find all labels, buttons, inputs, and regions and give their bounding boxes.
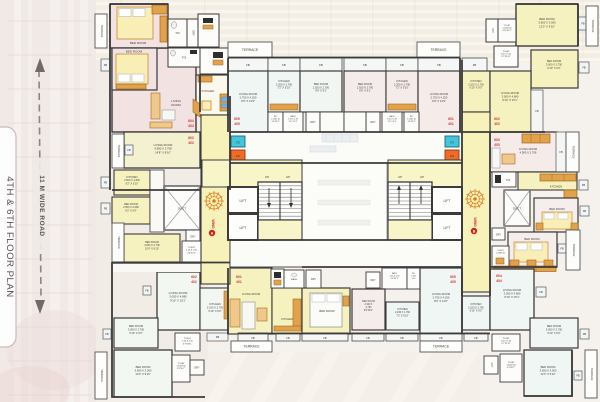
svg-text:WASH: WASH xyxy=(291,278,298,281)
svg-text:9’10” X 9’0”: 9’10” X 9’0” xyxy=(547,66,560,70)
svg-text:603: 603 xyxy=(494,138,500,142)
svg-text:KITCHEN: KITCHEN xyxy=(281,317,293,321)
svg-text:TERRACE: TERRACE xyxy=(591,20,595,33)
svg-text:401: 401 xyxy=(236,280,242,284)
svg-text:3‑11”X6’7”: 3‑11”X6’7” xyxy=(502,30,512,32)
svg-text:404: 404 xyxy=(496,279,502,283)
svg-text:FB: FB xyxy=(474,337,478,340)
svg-text:403: 403 xyxy=(188,141,194,145)
svg-text:UP: UP xyxy=(265,175,269,179)
svg-text:FB: FB xyxy=(319,63,323,67)
svg-text:FB: FB xyxy=(400,337,404,340)
svg-text:8’10” X 15’1”: 8’10” X 15’1” xyxy=(504,295,519,299)
svg-text:BED ROOM: BED ROOM xyxy=(549,207,565,211)
svg-text:8’0” X 14’0”: 8’0” X 14’0” xyxy=(434,299,448,303)
svg-text:605: 605 xyxy=(450,275,456,279)
svg-text:12’0” X 9’10”: 12’0” X 9’10” xyxy=(539,24,555,28)
svg-text:TERRACE: TERRACE xyxy=(572,146,576,159)
svg-text:LIVING ROOM: LIVING ROOM xyxy=(519,147,538,151)
svg-text:602: 602 xyxy=(191,275,197,279)
svg-text:2.00 X 1.20: 2.00 X 1.20 xyxy=(182,341,193,343)
svg-text:8’2” X 5’10”: 8’2” X 5’10” xyxy=(126,182,139,185)
svg-text:DRY: DRY xyxy=(370,279,375,282)
svg-text:1.30X2.00: 1.30X2.00 xyxy=(496,253,505,255)
svg-text:TOILET: TOILET xyxy=(184,338,192,340)
svg-text:7’2” X 5’10”: 7’2” X 5’10” xyxy=(396,314,408,317)
svg-text:LIVING ROOM: LIVING ROOM xyxy=(242,292,261,296)
svg-text:405: 405 xyxy=(234,122,240,126)
svg-text:11 M WIDE ROAD: 11 M WIDE ROAD xyxy=(38,175,45,236)
svg-text:LIVING ROOM: LIVING ROOM xyxy=(432,292,451,296)
svg-text:FB: FB xyxy=(366,337,370,340)
svg-text:LIVING ROOM: LIVING ROOM xyxy=(503,288,522,292)
svg-text:LIFT: LIFT xyxy=(444,199,451,203)
svg-text:KITCHEN: KITCHEN xyxy=(550,185,562,189)
svg-text:FB: FB xyxy=(559,150,563,154)
svg-text:TOILET: TOILET xyxy=(188,247,196,249)
svg-text:FB: FB xyxy=(145,289,149,293)
svg-text:2.790: 2.790 xyxy=(366,307,372,309)
svg-text:14’8” X 8’10”: 14’8” X 8’10” xyxy=(155,150,171,154)
svg-text:404: 404 xyxy=(188,124,194,128)
svg-text:12’0” X 9’10”: 12’0” X 9’10” xyxy=(540,372,555,376)
svg-text:604: 604 xyxy=(496,274,502,278)
svg-text:6’7”X3’11”: 6’7”X3’11” xyxy=(502,343,511,345)
svg-text:FB: FB xyxy=(286,337,290,340)
svg-text:4.580 X 2.708: 4.580 X 2.708 xyxy=(520,151,537,155)
svg-text:6’7”X3‑11”: 6’7”X3‑11” xyxy=(501,56,511,58)
svg-text:ROOM: ROOM xyxy=(171,103,181,107)
svg-text:DUCT: DUCT xyxy=(178,207,186,211)
svg-text:FB: FB xyxy=(535,109,539,113)
svg-text:8’10” X 15’1”: 8’10” X 15’1” xyxy=(502,98,517,102)
svg-text:3.000 X 4.680: 3.000 X 4.680 xyxy=(504,292,521,296)
svg-text:FB: FB xyxy=(583,209,587,213)
svg-text:FB: FB xyxy=(246,63,250,67)
svg-text:603: 603 xyxy=(188,136,194,140)
svg-text:3.000 X 2.750: 3.000 X 2.750 xyxy=(546,62,563,66)
svg-text:FB: FB xyxy=(439,337,443,340)
svg-text:WING: WING xyxy=(211,219,215,229)
svg-text:5’0”X4’3”: 5’0”X4’3” xyxy=(391,278,399,280)
svg-text:A: A xyxy=(211,231,214,235)
svg-text:FB: FB xyxy=(581,22,585,26)
svg-text:DRY: DRY xyxy=(194,367,200,370)
svg-text:401: 401 xyxy=(448,122,454,126)
svg-text:BED ROOM: BED ROOM xyxy=(319,309,335,313)
svg-text:4’0”X5’3”: 4’0”X5’3” xyxy=(187,252,196,254)
svg-text:9’10” X 15’1”: 9’10” X 15’1” xyxy=(170,298,186,302)
svg-text:6’7”X3’11”: 6’7”X3’11” xyxy=(183,343,193,345)
svg-text:2.750 X 4.250: 2.750 X 4.250 xyxy=(240,96,257,100)
svg-text:BED ROOM: BED ROOM xyxy=(126,50,143,54)
svg-text:FB: FB xyxy=(323,337,327,340)
svg-text:BED ROOM: BED ROOM xyxy=(541,365,556,369)
svg-text:12’0” X 9’10”: 12’0” X 9’10” xyxy=(135,372,150,376)
svg-text:TERRACE: TERRACE xyxy=(117,236,121,249)
svg-text:FB: FB xyxy=(216,335,220,339)
svg-text:KITCHEN: KITCHEN xyxy=(202,89,215,93)
svg-text:LIFT: LIFT xyxy=(240,226,247,230)
svg-text:3.650 X 3.000: 3.650 X 3.000 xyxy=(540,369,557,373)
svg-text:FB: FB xyxy=(583,332,587,336)
svg-text:5’0”X4’3”: 5’0”X4’3” xyxy=(272,121,280,123)
svg-text:6’10” X 9’0”: 6’10” X 9’0” xyxy=(470,310,483,313)
svg-text:LIVING ROOM: LIVING ROOM xyxy=(430,92,449,96)
svg-text:DRY: DRY xyxy=(491,28,494,33)
svg-text:DRY: DRY xyxy=(496,234,501,237)
svg-text:TERRACE: TERRACE xyxy=(430,48,447,52)
svg-text:DRY: DRY xyxy=(192,30,195,36)
svg-text:2.920 X: 2.920 X xyxy=(365,304,373,306)
svg-text:6’10” X 9’0”: 6’10” X 9’0” xyxy=(208,309,221,313)
svg-text:FB: FB xyxy=(582,183,586,187)
svg-text:FB: FB xyxy=(104,207,108,211)
svg-text:FB: FB xyxy=(560,247,564,251)
svg-text:FB: FB xyxy=(251,337,255,340)
svg-text:6’10” X 9’0”: 6’10” X 9’0” xyxy=(470,87,483,90)
svg-text:TERRACE: TERRACE xyxy=(100,369,104,382)
svg-text:605: 605 xyxy=(234,117,240,121)
svg-text:4’3”X6’7”: 4’3”X6’7” xyxy=(177,368,185,370)
svg-text:9’10” X 9’0”: 9’10” X 9’0” xyxy=(547,331,560,335)
svg-text:405: 405 xyxy=(450,280,456,284)
svg-text:BED ROOM: BED ROOM xyxy=(362,301,375,303)
svg-text:TERRACE: TERRACE xyxy=(243,345,260,349)
svg-text:TERRACE: TERRACE xyxy=(590,368,594,381)
svg-text:UP: UP xyxy=(286,175,290,179)
svg-text:9’6” X 9’1”: 9’6” X 9’1” xyxy=(359,89,371,93)
svg-text:604: 604 xyxy=(188,119,194,123)
svg-text:FB: FB xyxy=(104,181,108,185)
svg-text:10’9” X 8’10”: 10’9” X 8’10” xyxy=(145,247,159,250)
svg-text:WING: WING xyxy=(473,217,477,227)
svg-text:BED ROOM: BED ROOM xyxy=(547,59,561,63)
svg-text:3.000 X 2.750: 3.000 X 2.750 xyxy=(546,327,563,331)
svg-text:DRY: DRY xyxy=(311,278,316,281)
svg-text:TOI: TOI xyxy=(182,56,187,60)
svg-text:9’9” X 14’9”: 9’9” X 14’9” xyxy=(241,99,255,103)
svg-text:7’2” X 5’10”: 7’2” X 5’10” xyxy=(277,86,290,90)
svg-text:5’0”X4’3”: 5’0”X4’3” xyxy=(408,121,416,123)
svg-text:LIFT: LIFT xyxy=(240,199,247,203)
svg-text:TERRACE: TERRACE xyxy=(572,244,576,257)
svg-text:DRY: DRY xyxy=(310,121,316,124)
svg-text:FB: FB xyxy=(400,63,404,67)
svg-text:DRY: DRY xyxy=(190,236,196,239)
svg-text:FB: FB xyxy=(473,63,477,67)
svg-text:7’2” X 5’10”: 7’2” X 5’10” xyxy=(395,86,408,90)
svg-text:9’6”X9’1”: 9’6”X9’1” xyxy=(364,310,373,312)
svg-text:1.30: 1.30 xyxy=(412,278,416,280)
svg-text:9’6” X 9’1”: 9’6” X 9’1” xyxy=(315,89,327,93)
svg-text:4TH & 6TH FLOOR PLAN: 4TH & 6TH FLOOR PLAN xyxy=(4,176,15,297)
svg-text:TOI: TOI xyxy=(506,178,511,182)
svg-text:FB: FB xyxy=(582,66,586,70)
svg-text:FB: FB xyxy=(539,290,543,294)
svg-text:3.650 X 3.000: 3.650 X 3.000 xyxy=(135,369,152,373)
svg-text:DUCT: DUCT xyxy=(513,207,521,211)
svg-text:601: 601 xyxy=(236,275,242,279)
svg-text:9’9” X 14’9”: 9’9” X 14’9” xyxy=(432,99,446,103)
svg-text:FB: FB xyxy=(104,63,108,67)
svg-text:403: 403 xyxy=(494,143,500,147)
svg-text:UP: UP xyxy=(420,175,424,179)
svg-text:2.100 X 2.750: 2.100 X 2.750 xyxy=(207,305,224,309)
svg-text:602: 602 xyxy=(494,117,500,121)
svg-text:FB: FB xyxy=(127,148,131,152)
svg-text:4’3”X6’7”: 4’3”X6’7” xyxy=(507,367,515,369)
svg-text:1.20 X 1.60: 1.20 X 1.60 xyxy=(186,250,197,252)
svg-text:BED ROOM: BED ROOM xyxy=(547,324,561,328)
svg-text:FB: FB xyxy=(576,374,580,378)
svg-text:FB: FB xyxy=(363,63,367,67)
svg-text:DRY: DRY xyxy=(370,121,376,124)
svg-text:5’0” X 4’3”: 5’0” X 4’3” xyxy=(388,121,397,123)
svg-text:FB: FB xyxy=(437,63,441,67)
svg-text:2.750 X 4.250: 2.750 X 4.250 xyxy=(433,296,450,300)
svg-text:TERRACE: TERRACE xyxy=(433,345,450,349)
svg-text:9’10” X 9’0”: 9’10” X 9’0” xyxy=(129,331,142,335)
svg-text:KITCHEN: KITCHEN xyxy=(209,302,221,306)
svg-text:UP: UP xyxy=(398,175,402,179)
svg-text:402: 402 xyxy=(191,280,197,284)
svg-text:BED ROOM: BED ROOM xyxy=(136,365,151,369)
svg-text:3.000 X 2.750: 3.000 X 2.750 xyxy=(128,327,145,331)
svg-text:402: 402 xyxy=(494,122,500,126)
svg-text:FB: FB xyxy=(282,63,286,67)
svg-text:LIVING ROOM: LIVING ROOM xyxy=(501,91,520,95)
svg-text:LIVING ROOM: LIVING ROOM xyxy=(239,92,258,96)
svg-text:DRY: DRY xyxy=(490,362,493,367)
svg-text:TERRACE: TERRACE xyxy=(100,25,104,38)
svg-text:3.000 X 4.680: 3.000 X 4.680 xyxy=(502,95,519,99)
svg-text:FB: FB xyxy=(105,332,109,336)
svg-text:B: B xyxy=(473,229,476,233)
svg-text:2.750 X 4.250: 2.750 X 4.250 xyxy=(431,96,448,100)
svg-text:8’2” X 6’9”: 8’2” X 6’9” xyxy=(125,209,137,212)
svg-text:BED ROOM: BED ROOM xyxy=(130,41,147,45)
svg-text:TERRACE: TERRACE xyxy=(117,145,121,158)
svg-text:5’0” X 4’3”: 5’0” X 4’3” xyxy=(289,121,298,123)
svg-text:TOI: TOI xyxy=(175,31,180,35)
svg-text:BED ROOM: BED ROOM xyxy=(129,324,143,328)
svg-text:BED ROOM: BED ROOM xyxy=(524,237,540,241)
svg-text:601: 601 xyxy=(448,117,454,121)
svg-text:TERRACE: TERRACE xyxy=(242,48,259,52)
svg-text:LIFT: LIFT xyxy=(444,226,451,230)
